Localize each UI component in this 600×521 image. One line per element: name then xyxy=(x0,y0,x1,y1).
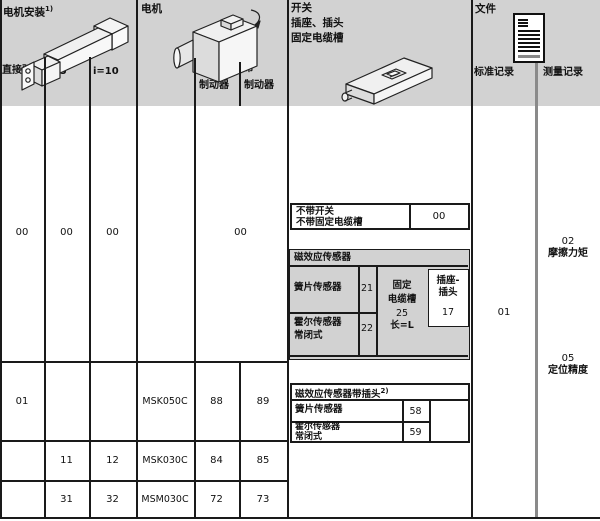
cell-r1-brake: 89 xyxy=(239,396,287,407)
col-line-nobrake-brake-header xyxy=(239,62,241,106)
cell-r2-i5: 11 xyxy=(44,455,89,466)
section-title-switch-1: 开关 xyxy=(291,2,312,14)
col-line-i5-i10 xyxy=(89,57,91,517)
hall-sensor-code: 22 xyxy=(358,323,376,334)
sensor-row-divider xyxy=(290,312,376,314)
section-title-switch-3: 固定电缆槽 xyxy=(291,32,344,44)
reed-sensor-code: 21 xyxy=(358,283,376,294)
sensor-bottom-line xyxy=(290,355,468,357)
row-line-3 xyxy=(0,480,288,482)
mount-title-sup: 1) xyxy=(45,5,53,13)
plug-label-1: 插座- xyxy=(429,275,467,286)
duct-label-2: 电缆槽 xyxy=(377,294,427,305)
col-label-standard-record: 标准记录 xyxy=(474,67,514,79)
plug-code: 17 xyxy=(429,307,467,318)
sensor-plug-header-line xyxy=(292,399,468,401)
cell-r2-name: MSK030C xyxy=(136,455,194,466)
sensor-table: 磁效应传感器 簧片传感器 21 霍尔传感器 常闭式 22 固定 电缆槽 25 长… xyxy=(289,249,470,360)
cell-r2-brake: 85 xyxy=(239,455,287,466)
cell-mount00-i10: 00 xyxy=(89,227,136,238)
standard-record-value: 01 xyxy=(473,307,535,318)
section-line-switch-docs xyxy=(471,0,473,519)
col-line-name-nobrake xyxy=(194,58,196,517)
plug-box: 插座- 插头 17 xyxy=(428,269,469,327)
no-switch-label-2: 不带固定电缆槽 xyxy=(296,217,363,228)
reed-plug-code: 58 xyxy=(402,406,429,417)
cell-r1-nobrake: 88 xyxy=(194,396,239,407)
cell-r3-name: MSM030C xyxy=(136,494,194,505)
catalog-page: 电机安装1) 电机 开关 插座、插头 固定电缆槽 文件 直接驱动 i=5 i=1… xyxy=(0,0,600,521)
plug-label-2: 插头 xyxy=(429,287,467,298)
measure-item-1-label: 摩擦力矩 xyxy=(538,248,598,259)
duct-label-1: 固定 xyxy=(377,280,427,291)
hall-plug-code: 59 xyxy=(402,427,429,438)
sensor-header: 磁效应传感器 xyxy=(294,252,351,263)
row-line-1 xyxy=(0,361,288,363)
col-label-measure-record: 测量记录 xyxy=(543,67,583,79)
motor-drawing xyxy=(165,8,273,102)
duct-length-label: 长=L xyxy=(377,320,427,331)
reed-plug-label: 簧片传感器 xyxy=(295,404,343,415)
reed-sensor-label: 簧片传感器 xyxy=(294,282,342,293)
cell-mount00-direct: 00 xyxy=(0,227,44,238)
sensor-vline-1 xyxy=(358,265,360,355)
hall-sensor-label-2: 常闭式 xyxy=(294,330,323,341)
document-icon xyxy=(513,13,545,63)
section-title-switch-2: 插座、插头 xyxy=(291,17,344,29)
cell-r3-i10: 32 xyxy=(89,494,136,505)
duct-code: 25 xyxy=(377,308,427,319)
measure-item-2-code: 05 xyxy=(538,353,598,364)
no-switch-table: 不带开关 不带固定电缆槽 00 xyxy=(290,203,470,230)
switch-drawing xyxy=(338,48,446,108)
hall-plug-label-1: 霍尔传感器 xyxy=(295,422,340,432)
row-line-2 xyxy=(0,440,288,442)
hall-plug-label-2: 常闭式 xyxy=(295,432,322,442)
cell-r3-brake: 73 xyxy=(239,494,287,505)
no-switch-value: 00 xyxy=(410,211,468,222)
measure-item-1-code: 02 xyxy=(538,236,598,247)
measure-item-2-label: 定位精度 xyxy=(538,365,598,376)
cell-r3-nobrake: 72 xyxy=(194,494,239,505)
cell-r1-name: MSK050C xyxy=(136,396,194,407)
cell-r2-nobrake: 84 xyxy=(194,455,239,466)
cell-r2-i10: 12 xyxy=(89,455,136,466)
cell-r1-direct: 01 xyxy=(0,396,44,407)
cell-r3-i5: 31 xyxy=(44,494,89,505)
sensor-header-line xyxy=(290,265,468,267)
hall-sensor-label-1: 霍尔传感器 xyxy=(294,317,342,328)
motor-mount-drawing xyxy=(14,16,136,100)
cell-mount00-i5: 00 xyxy=(44,227,89,238)
no-switch-label-1: 不带开关 xyxy=(296,206,334,217)
section-title-docs: 文件 xyxy=(475,3,496,15)
sensor-plug-table: 磁效应传感器带插头2) 簧片传感器 58 霍尔传感器 常闭式 59 xyxy=(290,383,470,443)
sensor-plug-header-sup: 2) xyxy=(381,387,389,395)
sensor-plug-vline-2 xyxy=(429,399,431,441)
section-title-motor: 电机 xyxy=(141,3,162,15)
bottom-border-line xyxy=(0,517,600,519)
docs-column-divider xyxy=(535,63,538,517)
col-line-direct-i5 xyxy=(44,57,46,517)
cell-motor00: 00 xyxy=(194,227,287,238)
